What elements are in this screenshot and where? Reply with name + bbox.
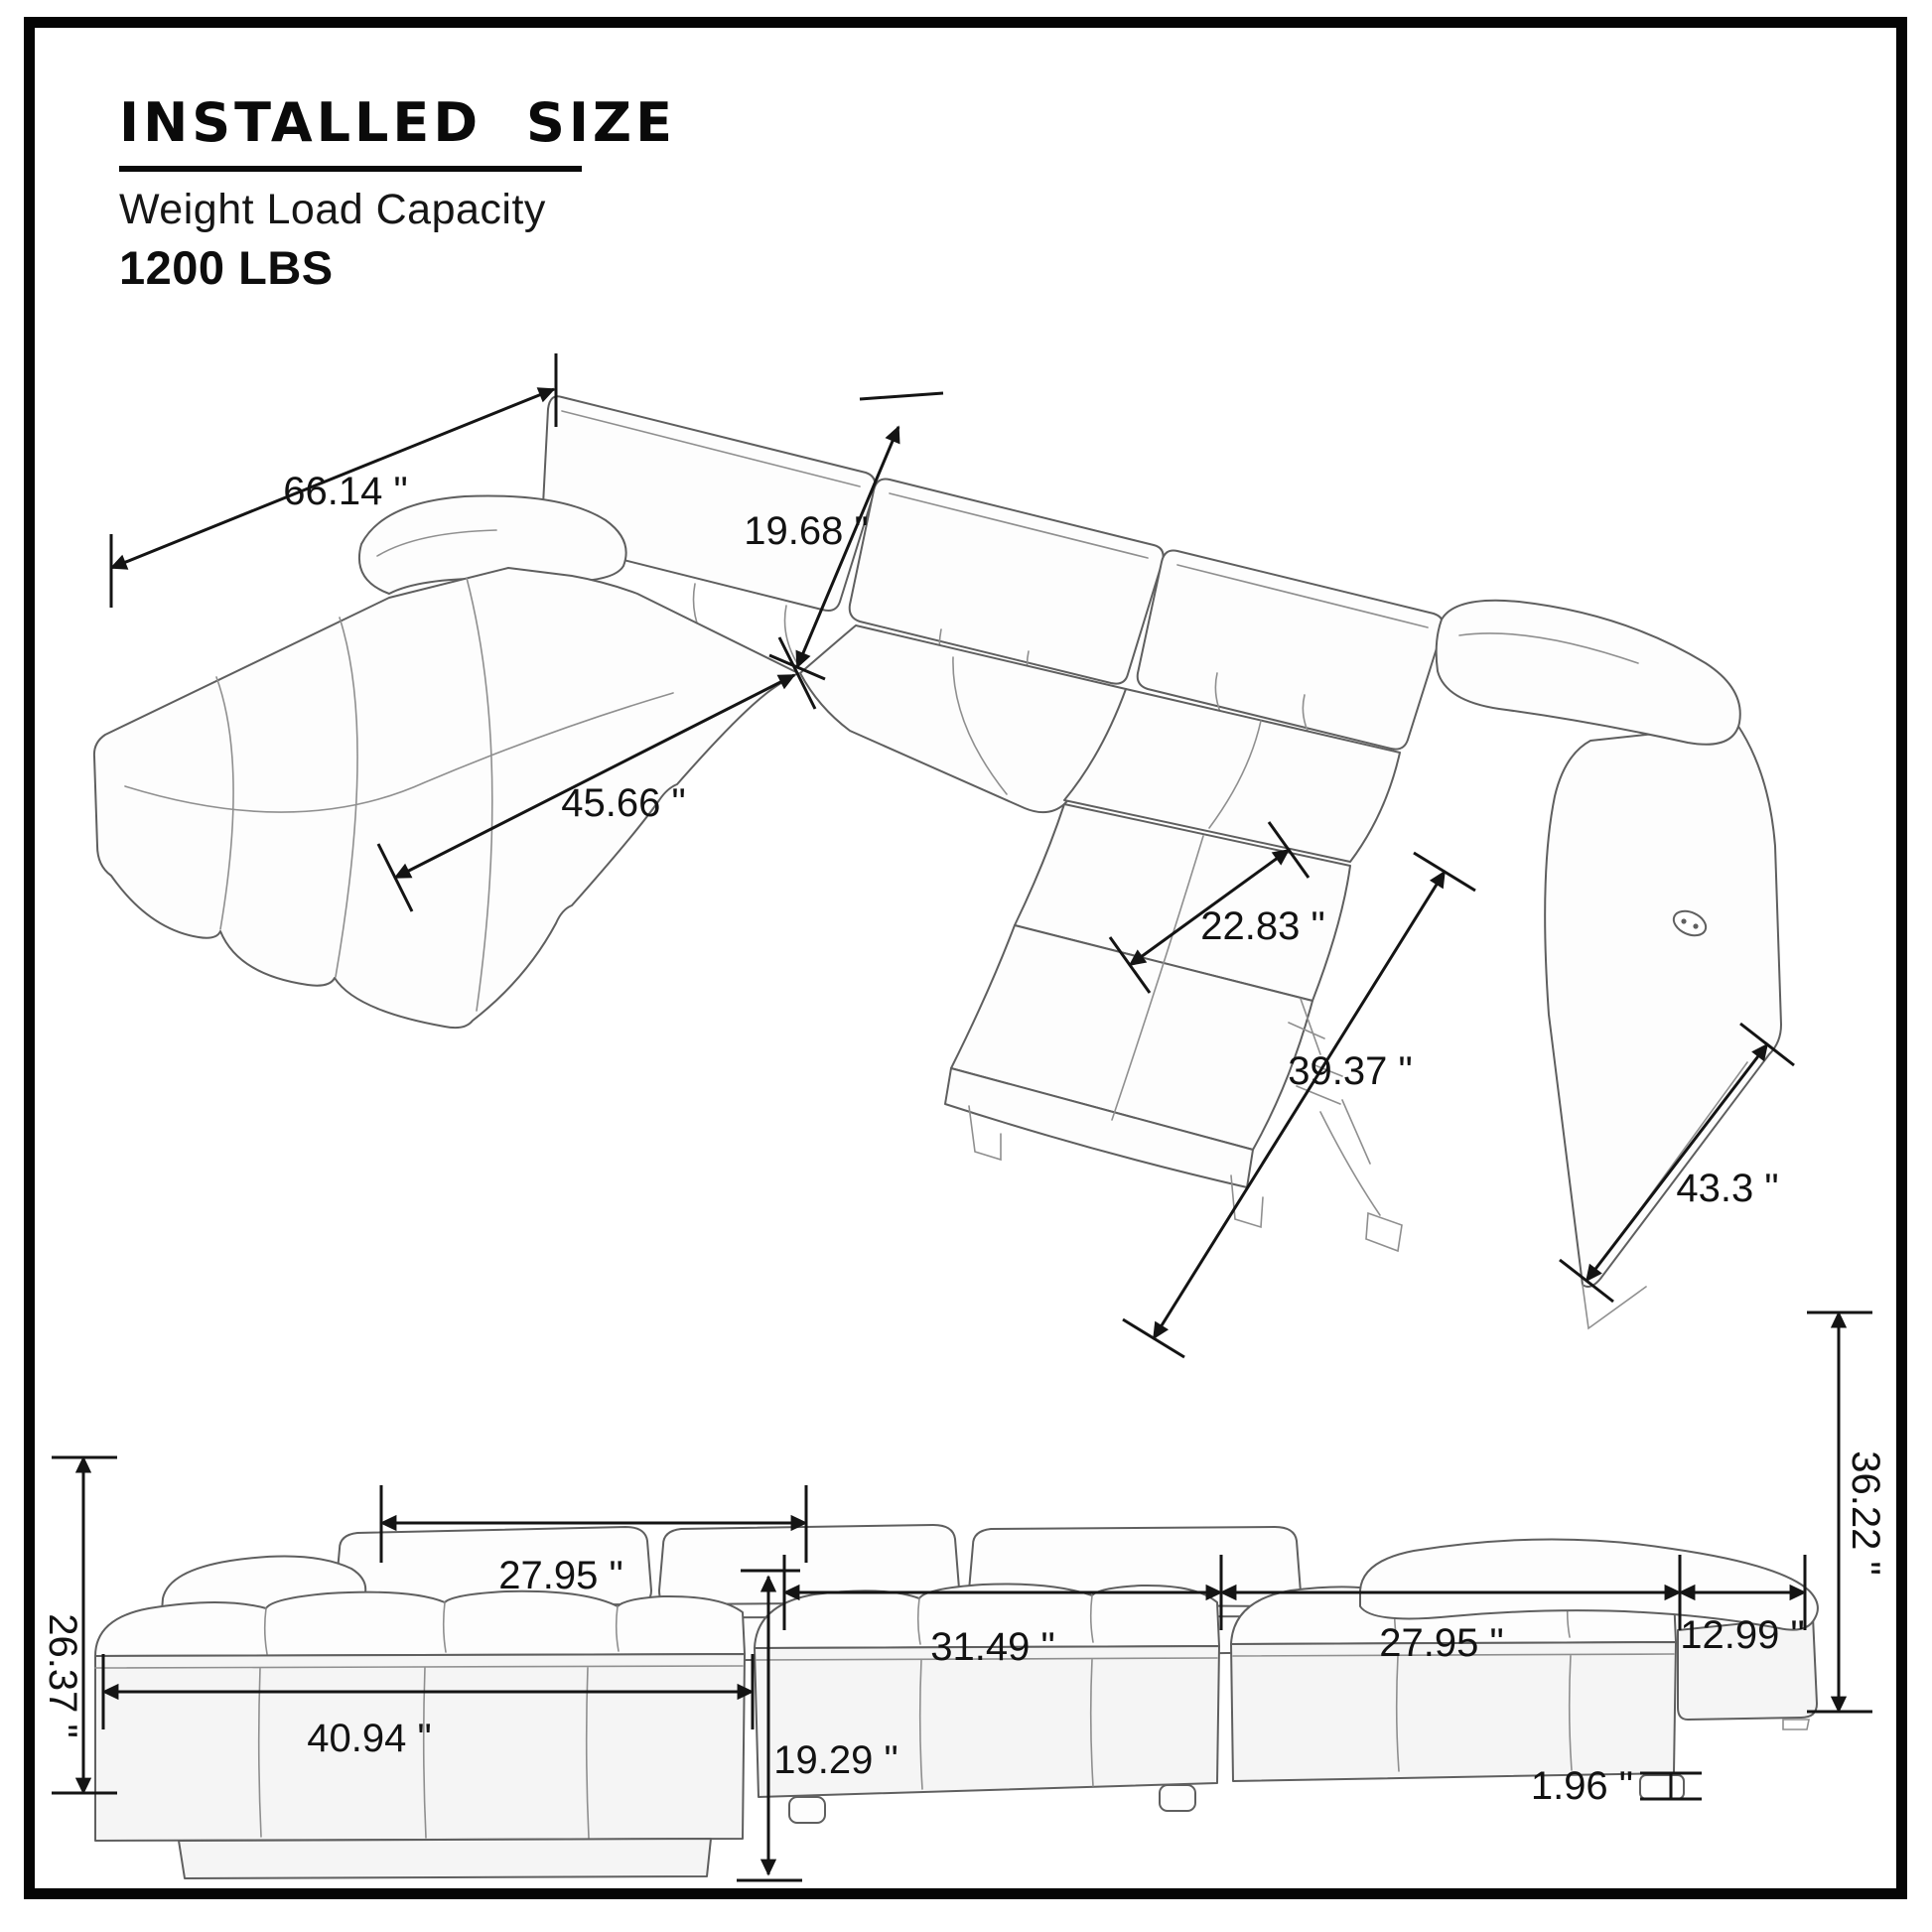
dim-label-side-depth: 43.3 " [1676,1167,1778,1210]
dim-label-chaise-seat-height: 26.37 " [41,1613,84,1737]
dim-label-chaise-seat-width: 27.95 " [498,1554,622,1597]
dimension-diagram: 66.14 " 19.68 " 45.66 " 22.83 " 39.37 " … [0,0,1932,1932]
sofa-leg [1640,1775,1684,1799]
recliner-mechanism [1289,999,1402,1251]
dim-label-recliner-seat-width: 22.83 " [1200,904,1324,948]
dim-label-middle-seat-width: 31.49 " [930,1625,1054,1669]
chaise-lounge [94,568,798,1028]
dim-label-back-width: 66.14 " [283,470,407,513]
top-perspective-view [94,396,1781,1328]
chaise-base-plinth [179,1839,711,1878]
dim-label-chaise-length: 45.66 " [561,781,685,825]
dim-label-leg-height: 1.96 " [1531,1764,1633,1808]
dim-label-backrest-height: 19.68 " [744,509,868,553]
dimension-overall-height: 36.22 " [1807,1312,1887,1712]
dim-label-right-seat-width: 27.95 " [1379,1621,1503,1665]
arm-foot [1783,1720,1809,1729]
front-elevation-view [95,1525,1818,1878]
dim-label-chaise-front-width: 40.94 " [307,1717,431,1760]
dim-label-seat-front-height: 19.29 " [773,1738,897,1782]
sofa-leg [789,1797,825,1823]
dim-label-overall-height: 36.22 " [1844,1450,1887,1575]
sofa-leg [1160,1785,1195,1811]
right-armrest-pad [1437,601,1740,745]
dim-label-armrest-width: 12.99 " [1680,1613,1804,1657]
dim-label-recliner-extended-length: 39.37 " [1288,1049,1412,1093]
